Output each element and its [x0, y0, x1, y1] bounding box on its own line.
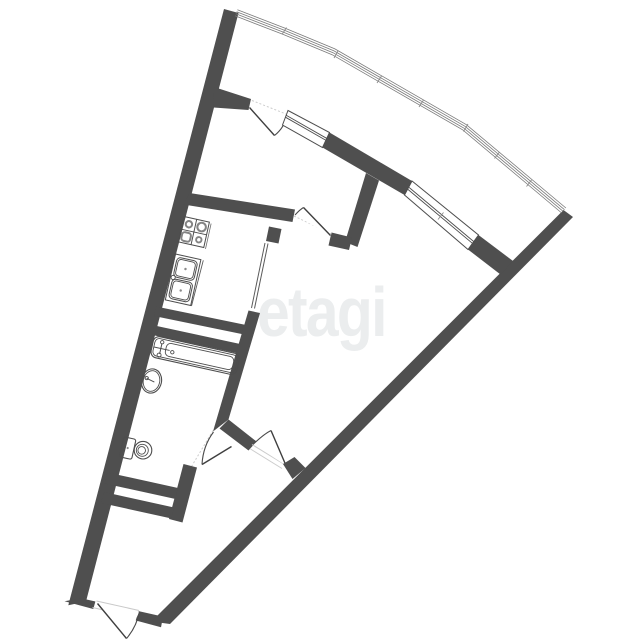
- svg-text:etagi: etagi: [257, 272, 386, 351]
